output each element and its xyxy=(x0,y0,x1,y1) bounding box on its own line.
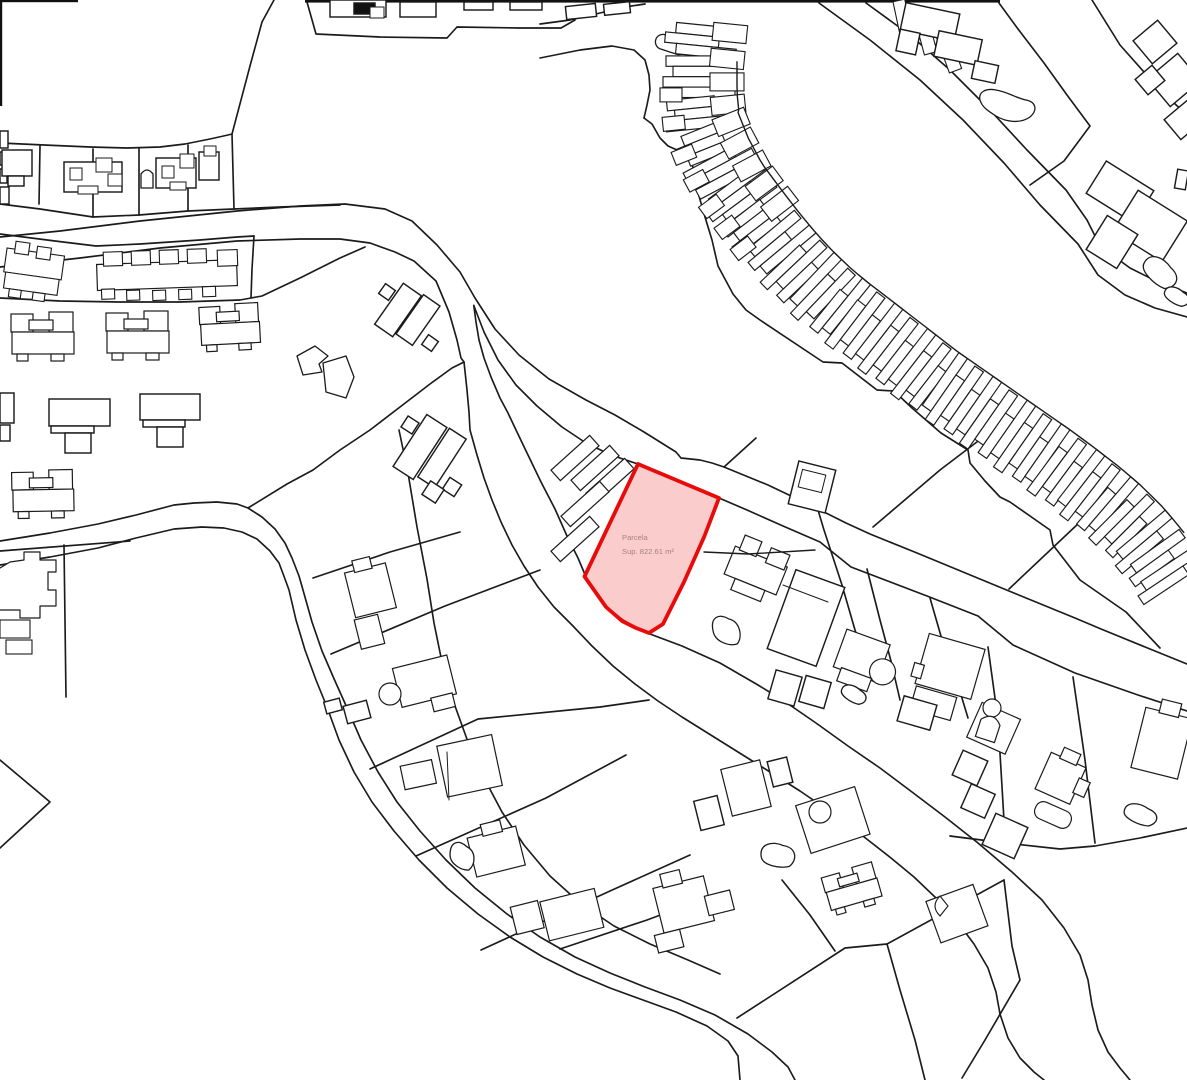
svg-text:Sup. 822.61 m²: Sup. 822.61 m² xyxy=(622,547,674,556)
svg-text:Parcela: Parcela xyxy=(622,533,649,542)
